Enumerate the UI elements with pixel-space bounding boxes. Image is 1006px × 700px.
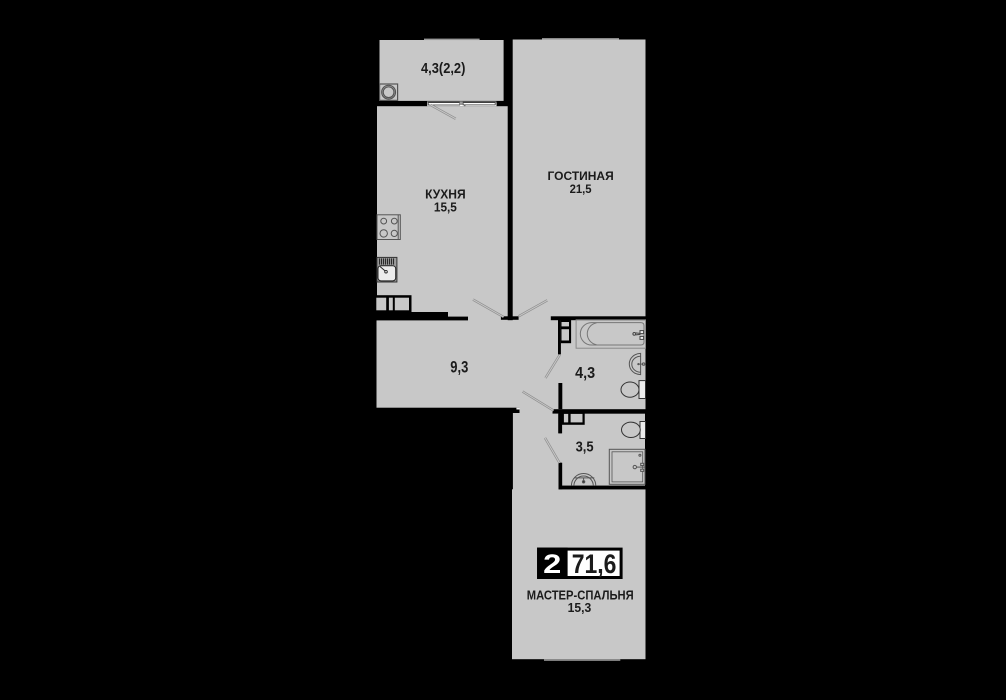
svg-text:4,3(2,2): 4,3(2,2) xyxy=(421,61,466,77)
svg-text:9,3: 9,3 xyxy=(450,358,468,376)
svg-text:15,5: 15,5 xyxy=(434,201,457,215)
svg-text:15,3: 15,3 xyxy=(568,600,592,615)
svg-text:3,5: 3,5 xyxy=(576,438,594,455)
svg-text:71,6: 71,6 xyxy=(572,549,617,579)
svg-text:4,3: 4,3 xyxy=(575,365,595,382)
svg-text:2: 2 xyxy=(543,549,561,579)
svg-text:21,5: 21,5 xyxy=(570,182,592,196)
svg-text:КУХНЯ: КУХНЯ xyxy=(425,188,466,202)
